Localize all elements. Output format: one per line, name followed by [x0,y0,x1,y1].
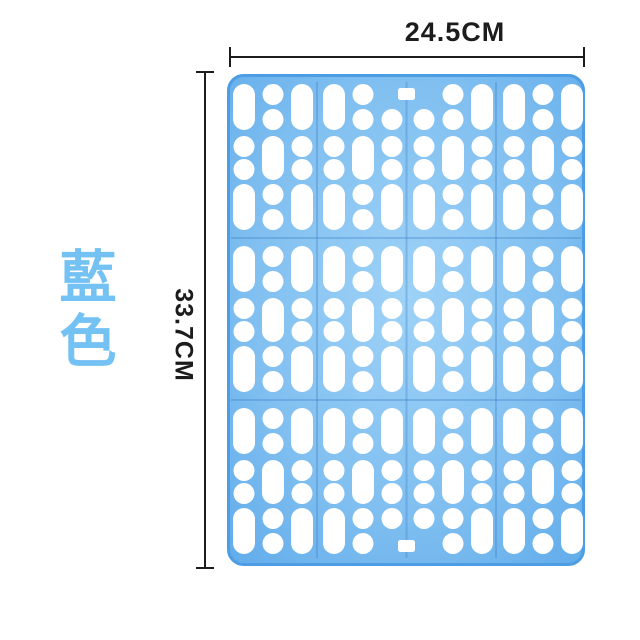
height-dimension-tick-top [196,71,214,73]
height-dimension-tick-bottom [196,567,214,569]
width-dimension-line [230,56,584,58]
width-dimension-tick-right [583,47,585,67]
product-figure: 藍色 24.5CM 33.7CM [0,0,640,640]
width-dimension-label: 24.5CM [405,17,506,48]
color-name-label: 藍色 [56,247,120,375]
height-dimension-label: 33.7CM [169,288,198,382]
blue-mat-product-image [227,74,585,566]
width-dimension-tick-left [229,47,231,67]
height-dimension-line [204,72,206,568]
